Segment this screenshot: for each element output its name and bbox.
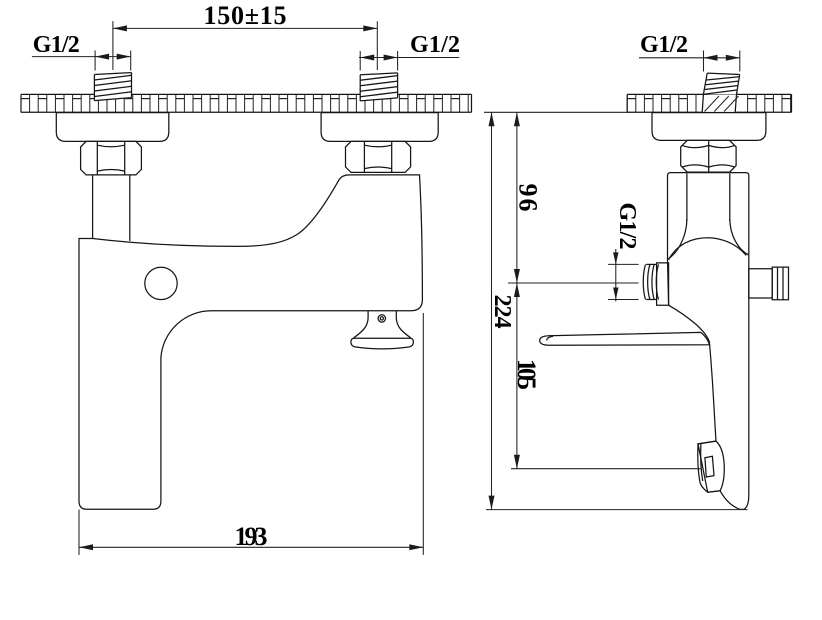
svg-text:G1/2: G1/2 xyxy=(640,32,688,58)
svg-text:105: 105 xyxy=(512,359,541,390)
svg-text:150±15: 150±15 xyxy=(204,1,287,30)
svg-text:193: 193 xyxy=(235,522,268,551)
svg-text:G1/2: G1/2 xyxy=(614,203,640,250)
svg-text:G1/2: G1/2 xyxy=(410,32,460,58)
svg-text:224: 224 xyxy=(489,295,515,329)
svg-text:G1/2: G1/2 xyxy=(33,32,80,58)
